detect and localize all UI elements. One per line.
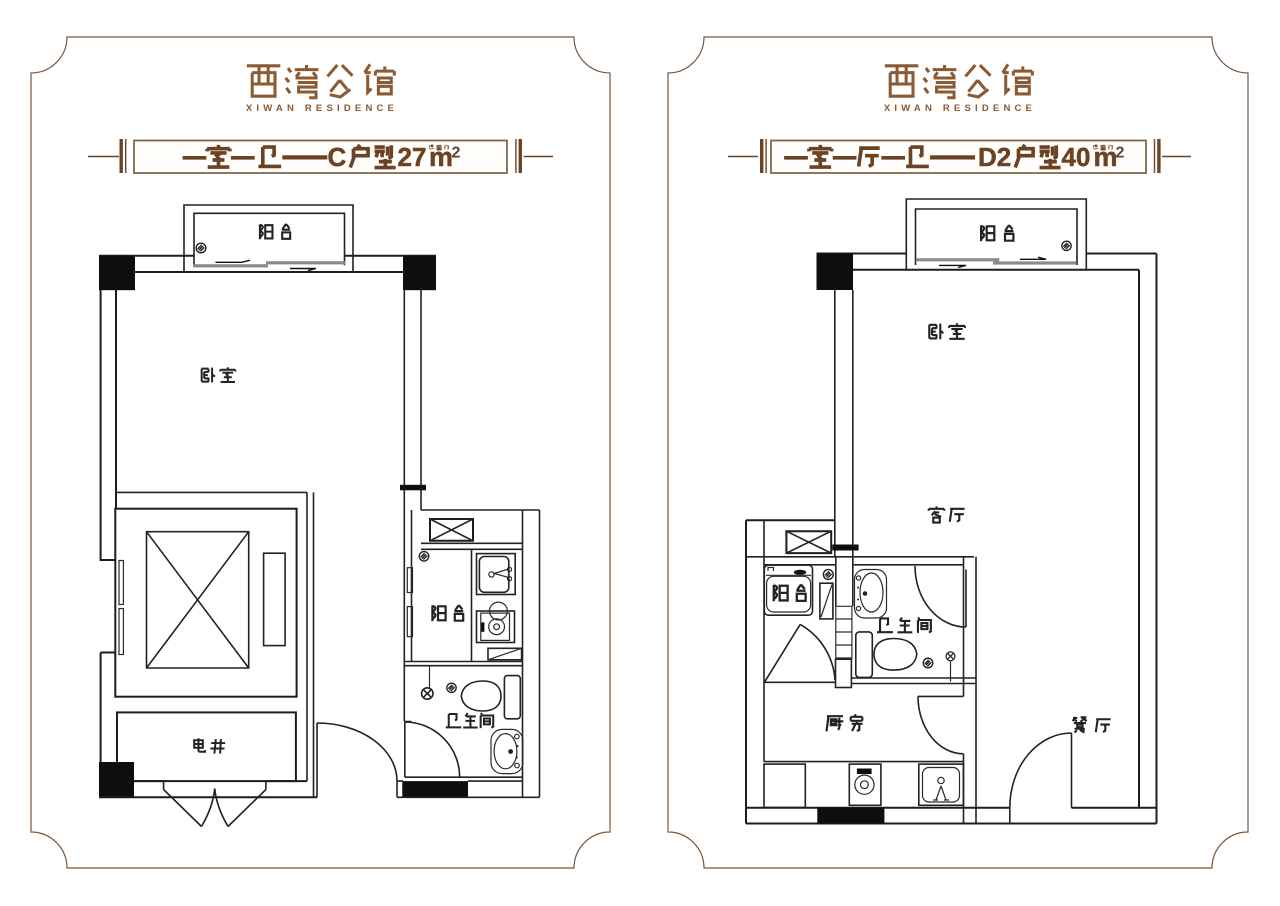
svg-text:C: C <box>328 142 347 172</box>
svg-text:2: 2 <box>452 145 461 162</box>
svg-text:XIWAN RESIDENCE: XIWAN RESIDENCE <box>246 103 398 114</box>
svg-text:2: 2 <box>1116 145 1125 162</box>
svg-text:27: 27 <box>398 142 427 172</box>
svg-text:XIWAN RESIDENCE: XIWAN RESIDENCE <box>884 103 1036 114</box>
svg-text:D2: D2 <box>978 142 1011 172</box>
svg-text:40: 40 <box>1062 142 1091 172</box>
